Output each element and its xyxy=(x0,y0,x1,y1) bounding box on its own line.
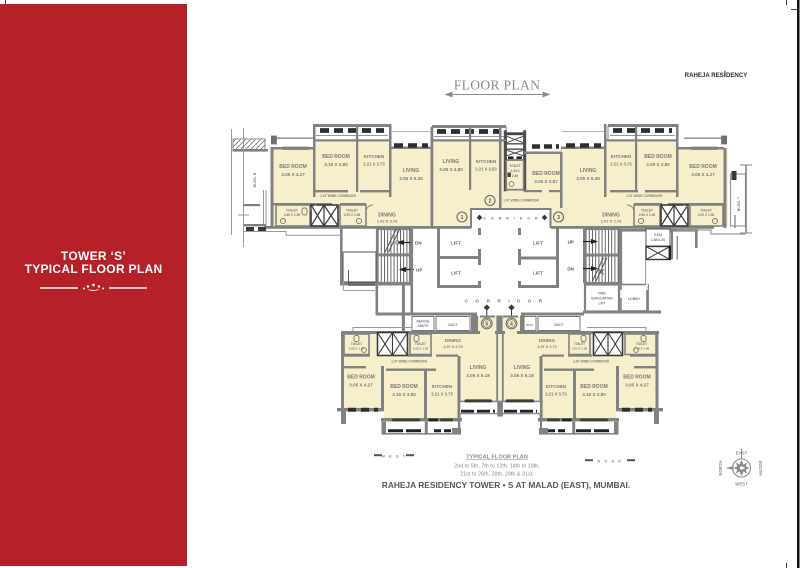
svg-text:BLDG. R: BLDG. R xyxy=(253,172,257,187)
svg-text:2.21 X 3.73: 2.21 X 3.73 xyxy=(545,392,567,397)
svg-text:DINING: DINING xyxy=(539,338,556,343)
svg-text:TOILET: TOILET xyxy=(346,209,359,213)
svg-text:DN: DN xyxy=(415,241,422,246)
svg-text:BED ROOM: BED ROOM xyxy=(390,384,418,390)
svg-text:2.00 X 1.08: 2.00 X 1.08 xyxy=(634,347,650,351)
svg-text:RAHEJA RESIDENCY: RAHEJA RESIDENCY xyxy=(685,70,748,79)
svg-text:UP: UP xyxy=(416,268,422,273)
svg-text:LIFT: LIFT xyxy=(451,271,461,277)
svg-text:BLDG. T: BLDG. T xyxy=(737,196,741,211)
svg-text:3.05 X 5.35: 3.05 X 5.35 xyxy=(576,176,600,181)
svg-text:C O R R I D O R: C O R R I D O R xyxy=(465,299,545,304)
svg-text:3.15 X 3.80: 3.15 X 3.80 xyxy=(392,392,416,397)
svg-text:LIVING: LIVING xyxy=(443,159,460,165)
svg-text:FLOOR PLAN: FLOOR PLAN xyxy=(454,78,540,93)
svg-text:LIFT: LIFT xyxy=(451,241,461,247)
svg-text:3.05 X 4.27: 3.05 X 4.27 xyxy=(349,383,373,388)
svg-text:LOBBY: LOBBY xyxy=(628,297,641,301)
svg-text:RAHEJA RESIDENCY TOWER • S AT: RAHEJA RESIDENCY TOWER • S AT MALAD (EAS… xyxy=(382,480,630,490)
svg-text:3: 3 xyxy=(557,215,560,221)
svg-text:C O R R I D O R: C O R R I D O R xyxy=(483,217,540,221)
svg-text:DUCT: DUCT xyxy=(554,323,563,327)
svg-text:TOILET: TOILET xyxy=(636,342,647,346)
svg-text:W E S T: W E S T xyxy=(381,455,406,459)
svg-text:1.07 X 2.73: 1.07 X 2.73 xyxy=(537,345,556,349)
svg-text:KITCHEN: KITCHEN xyxy=(476,159,497,164)
svg-text:KITCHEN: KITCHEN xyxy=(432,384,453,389)
svg-text:BED ROOM: BED ROOM xyxy=(689,164,717,170)
svg-text:1.07 WIDE CORRIDOR: 1.07 WIDE CORRIDOR xyxy=(503,199,539,203)
svg-text:3.05 X 4.80: 3.05 X 4.80 xyxy=(439,167,463,172)
svg-text:2.21 X 3.73: 2.21 X 3.73 xyxy=(610,162,632,167)
svg-text:KITCHEN: KITCHEN xyxy=(546,384,567,389)
svg-text:BED ROOM: BED ROOM xyxy=(532,171,560,177)
svg-text:DN: DN xyxy=(567,267,574,272)
svg-text:1: 1 xyxy=(461,215,464,221)
svg-text:2.21 X 3.73: 2.21 X 3.73 xyxy=(431,392,453,397)
svg-text:4: 4 xyxy=(510,322,513,328)
svg-text:TOILET: TOILET xyxy=(641,209,654,213)
svg-text:3.15 X 3.80: 3.15 X 3.80 xyxy=(582,392,606,397)
svg-text:CHUTE: CHUTE xyxy=(418,324,429,328)
svg-text:NORTH: NORTH xyxy=(718,460,723,475)
svg-text:1.07 WIDE CORRIDOR: 1.07 WIDE CORRIDOR xyxy=(626,194,662,198)
svg-text:BED ROOM: BED ROOM xyxy=(322,154,350,160)
svg-text:2.03 X 1.08: 2.03 X 1.08 xyxy=(572,347,588,351)
svg-text:LIFT: LIFT xyxy=(533,271,543,277)
svg-text:1.07 X 2.73: 1.07 X 2.73 xyxy=(601,219,622,224)
svg-text:KITCHEN: KITCHEN xyxy=(611,154,632,159)
svg-text:3.05 X 3.87: 3.05 X 3.87 xyxy=(534,179,558,184)
svg-text:3.05 X 4.27: 3.05 X 4.27 xyxy=(625,383,649,388)
svg-text:TOILET: TOILET xyxy=(700,209,713,213)
svg-text:LIVING: LIVING xyxy=(470,365,487,371)
svg-text:TYPICAL FLOOR PLAN: TYPICAL FLOOR PLAN xyxy=(466,455,528,461)
svg-text:3.05 X 4.27: 3.05 X 4.27 xyxy=(691,172,715,177)
svg-text:2.00 X 1.08: 2.00 X 1.08 xyxy=(284,213,301,217)
svg-text:2: 2 xyxy=(489,199,492,205)
svg-text:DUCT: DUCT xyxy=(526,323,534,327)
svg-text:2.00 X 1.08: 2.00 X 1.08 xyxy=(639,213,656,217)
svg-text:1.07 WIDE CORRIDOR: 1.07 WIDE CORRIDOR xyxy=(320,194,356,198)
svg-text:LIFT: LIFT xyxy=(599,302,606,306)
svg-text:TOILET: TOILET xyxy=(415,342,426,346)
svg-text:TOILET: TOILET xyxy=(574,342,585,346)
svg-text:REFUSE: REFUSE xyxy=(417,320,430,324)
svg-text:5.924: 5.924 xyxy=(654,233,662,237)
svg-text:21st to 26th, 28th, 29th & 31s: 21st to 26th, 28th, 29th & 31st. xyxy=(460,472,533,478)
svg-text:LIVING: LIVING xyxy=(514,365,531,371)
svg-text:EVACUATION: EVACUATION xyxy=(591,297,613,301)
svg-text:LIVING: LIVING xyxy=(580,168,597,174)
svg-text:3.05 X 4.27: 3.05 X 4.27 xyxy=(281,172,305,177)
svg-text:UP: UP xyxy=(568,240,574,245)
svg-text:TOILET: TOILET xyxy=(509,164,520,168)
svg-text:WEST: WEST xyxy=(735,482,748,487)
svg-text:R O A D: R O A D xyxy=(597,460,622,464)
svg-text:1.42 X 3.73: 1.42 X 3.73 xyxy=(377,219,398,224)
svg-text:3.05 X 5.35: 3.05 X 5.35 xyxy=(399,176,423,181)
svg-text:2.00 X 1.08: 2.00 X 1.08 xyxy=(698,213,715,217)
svg-text:1.07 WIDE CORRIDOR: 1.07 WIDE CORRIDOR xyxy=(391,360,427,364)
svg-text:1.44 X: 1.44 X xyxy=(510,169,520,173)
svg-text:SOUTH: SOUTH xyxy=(758,460,763,475)
svg-text:2.00 X 1.08: 2.00 X 1.08 xyxy=(413,347,429,351)
svg-text:BED ROOM: BED ROOM xyxy=(623,375,651,381)
svg-text:3.05 X 5.18: 3.05 X 5.18 xyxy=(510,373,534,378)
svg-text:BED ROOM: BED ROOM xyxy=(644,154,672,160)
svg-text:3.09 X 3.80: 3.09 X 3.80 xyxy=(646,162,670,167)
svg-text:1.07 X 2.73: 1.07 X 2.73 xyxy=(443,345,462,349)
svg-text:1.68x1.30: 1.68x1.30 xyxy=(651,238,665,242)
svg-text:LIFT: LIFT xyxy=(533,241,543,247)
svg-text:2.21 X 3.53: 2.21 X 3.53 xyxy=(475,167,497,172)
svg-text:5: 5 xyxy=(485,322,488,328)
svg-text:1.07 WIDE CORRIDOR: 1.07 WIDE CORRIDOR xyxy=(573,360,609,364)
svg-text:2.00 X 1.08: 2.00 X 1.08 xyxy=(344,213,361,217)
svg-text:2nd to 5th, 7th to 12th, 14th: 2nd to 5th, 7th to 12th, 14th to 19th, xyxy=(454,464,540,470)
svg-text:DINING: DINING xyxy=(445,338,462,343)
svg-text:KITCHEN: KITCHEN xyxy=(364,154,385,159)
svg-text:FIRE: FIRE xyxy=(598,292,606,296)
svg-text:3.05 X 5.18: 3.05 X 5.18 xyxy=(466,373,490,378)
svg-text:TOILET: TOILET xyxy=(286,209,299,213)
svg-text:BED ROOM: BED ROOM xyxy=(580,384,608,390)
svg-text:2.49: 2.49 xyxy=(512,174,518,178)
svg-text:DUCT: DUCT xyxy=(448,323,457,327)
svg-text:EAST: EAST xyxy=(736,451,748,456)
svg-text:BED ROOM: BED ROOM xyxy=(279,164,307,170)
svg-text:BED ROOM: BED ROOM xyxy=(347,375,375,381)
svg-text:3.15 X 3.80: 3.15 X 3.80 xyxy=(324,162,348,167)
svg-text:LIVING: LIVING xyxy=(403,168,420,174)
svg-text:TOILET: TOILET xyxy=(351,342,362,346)
svg-text:2.21 X 3.73: 2.21 X 3.73 xyxy=(363,162,385,167)
